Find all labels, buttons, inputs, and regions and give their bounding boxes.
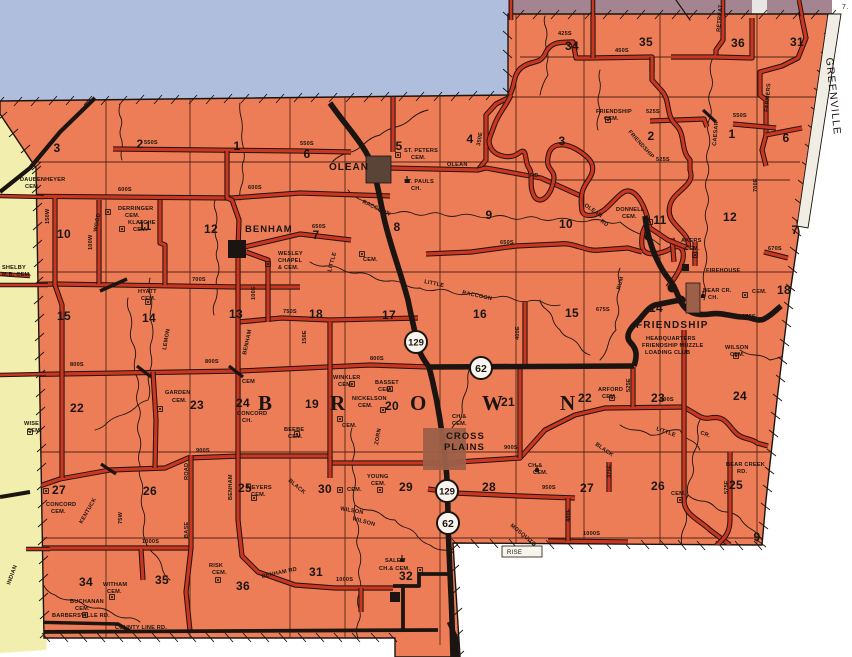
svg-text:DAUBENHEYER: DAUBENHEYER — [20, 177, 65, 183]
svg-text:CH.&: CH.& — [528, 463, 542, 469]
svg-text:CONCORD: CONCORD — [46, 502, 76, 508]
svg-text:NICKELSON: NICKELSON — [352, 396, 387, 402]
svg-text:675S: 675S — [742, 314, 756, 320]
svg-text:35: 35 — [639, 35, 653, 49]
svg-text:WISE: WISE — [24, 421, 39, 427]
svg-text:ARFORD: ARFORD — [598, 387, 623, 393]
svg-text:19: 19 — [305, 397, 319, 411]
svg-text:WINKLER: WINKLER — [333, 375, 361, 381]
svg-text:RD.: RD. — [737, 469, 747, 475]
svg-text:1000S: 1000S — [336, 577, 353, 583]
svg-text:RISK: RISK — [209, 563, 223, 569]
svg-text:BASSET: BASSET — [375, 380, 399, 386]
svg-text:DONNELL: DONNELL — [616, 207, 645, 213]
svg-text:CROSS: CROSS — [446, 431, 485, 442]
svg-text:13: 13 — [229, 307, 243, 321]
svg-text:RD.: RD. — [530, 173, 540, 179]
svg-text:3: 3 — [54, 141, 61, 155]
svg-text:CEM.: CEM. — [752, 289, 767, 295]
svg-text:12: 12 — [723, 210, 737, 224]
svg-text:900S: 900S — [196, 448, 210, 454]
svg-text:COUNTY LINE RD.: COUNTY LINE RD. — [115, 625, 167, 631]
svg-text:62: 62 — [475, 363, 487, 375]
svg-text:35: 35 — [155, 573, 169, 587]
svg-text:375E: 375E — [607, 464, 613, 478]
svg-text:CEM.: CEM. — [452, 421, 467, 427]
svg-text:OLEAN: OLEAN — [447, 162, 468, 168]
svg-text:18: 18 — [309, 307, 323, 321]
svg-text:BENHAM: BENHAM — [245, 224, 293, 235]
svg-text:BEAR CREEK: BEAR CREEK — [726, 462, 765, 468]
svg-text:CEM.: CEM. — [730, 352, 745, 358]
svg-text:7.: 7. — [842, 4, 848, 11]
svg-text:CEM.: CEM. — [251, 492, 266, 498]
svg-text:CEM.: CEM. — [27, 428, 42, 434]
svg-text:HEADQUARTERS: HEADQUARTERS — [646, 336, 696, 342]
svg-text:FRIENDSHIP MUZZLE: FRIENDSHIP MUZZLE — [642, 343, 703, 349]
svg-text:10: 10 — [57, 227, 71, 241]
svg-text:550S: 550S — [733, 113, 747, 119]
svg-text:700S: 700S — [192, 277, 206, 283]
svg-text:670S: 670S — [768, 246, 782, 252]
svg-text:650S: 650S — [500, 240, 514, 246]
svg-text:BUCHANAN: BUCHANAN — [70, 599, 104, 605]
svg-text:575E: 575E — [724, 480, 730, 494]
svg-text:62: 62 — [442, 518, 454, 530]
svg-text:KLATCHE: KLATCHE — [128, 220, 156, 226]
svg-text:425S: 425S — [558, 31, 572, 37]
svg-text:550S: 550S — [144, 140, 158, 146]
svg-text:1000S: 1000S — [142, 539, 159, 545]
svg-text:150E: 150E — [302, 330, 308, 344]
svg-text:CEM.: CEM. — [25, 184, 40, 190]
svg-text:7: 7 — [313, 228, 320, 242]
svg-text:CEM.: CEM. — [685, 246, 700, 252]
svg-text:FRIENDSHIP: FRIENDSHIP — [636, 320, 709, 331]
svg-text:ST. PETERS: ST. PETERS — [404, 148, 438, 154]
svg-text:SHELBY: SHELBY — [2, 265, 26, 271]
svg-text:10: 10 — [559, 217, 573, 231]
svg-text:36: 36 — [731, 36, 745, 50]
svg-text:27: 27 — [580, 481, 594, 495]
svg-text:11: 11 — [653, 213, 666, 227]
svg-text:525S: 525S — [656, 157, 670, 163]
svg-text:550S: 550S — [300, 141, 314, 147]
svg-text:CH.& CEM.: CH.& CEM. — [379, 566, 410, 572]
svg-text:MEYERS: MEYERS — [247, 485, 272, 491]
svg-text:ROAD: ROAD — [184, 463, 190, 480]
svg-text:CH.: CH. — [242, 418, 252, 424]
svg-text:36: 36 — [236, 579, 250, 593]
svg-text:CEM.: CEM. — [125, 213, 140, 219]
svg-text:BENHAM: BENHAM — [228, 474, 234, 500]
svg-text:CH.: CH. — [708, 295, 718, 301]
svg-text:14: 14 — [142, 311, 156, 325]
svg-text:22: 22 — [578, 391, 592, 405]
svg-text:30: 30 — [318, 482, 332, 496]
svg-text:34: 34 — [79, 575, 93, 589]
svg-text:FRIENDSHIP: FRIENDSHIP — [596, 109, 632, 115]
svg-text:20: 20 — [385, 399, 399, 413]
svg-text:O: O — [410, 391, 427, 415]
svg-text:2: 2 — [137, 137, 144, 151]
svg-text:31: 31 — [790, 35, 804, 49]
svg-text:1000S: 1000S — [583, 531, 600, 537]
svg-text:AKERS: AKERS — [681, 238, 702, 244]
svg-text:25: 25 — [729, 478, 743, 492]
svg-text:9: 9 — [754, 530, 761, 544]
svg-text:N: N — [560, 391, 575, 415]
svg-text:CEM.: CEM. — [622, 214, 637, 220]
svg-text:2: 2 — [648, 129, 655, 143]
svg-text:YOUNG: YOUNG — [367, 474, 389, 480]
svg-text:HYATT: HYATT — [138, 289, 157, 295]
svg-text:16: 16 — [473, 307, 487, 321]
svg-text:600S: 600S — [248, 185, 262, 191]
svg-text:75W: 75W — [118, 511, 124, 524]
svg-text:CEM.: CEM. — [107, 589, 122, 595]
svg-text:400E: 400E — [515, 326, 521, 340]
svg-text:900S: 900S — [660, 397, 674, 403]
svg-text:CEM.: CEM. — [133, 227, 148, 233]
svg-text:RISE: RISE — [507, 550, 522, 556]
svg-text:24: 24 — [733, 389, 747, 403]
svg-text:CEM: CEM — [242, 379, 255, 385]
svg-text:29: 29 — [399, 480, 413, 494]
svg-text:15: 15 — [565, 306, 579, 320]
svg-text:WESLEY: WESLEY — [278, 251, 303, 257]
svg-text:CEM.: CEM. — [358, 403, 373, 409]
svg-text:M.B. CEM.: M.B. CEM. — [2, 272, 31, 278]
svg-text:800S: 800S — [370, 356, 384, 362]
svg-text:CEM.: CEM. — [411, 155, 426, 161]
svg-text:15: 15 — [57, 309, 71, 323]
svg-text:800S: 800S — [70, 362, 84, 368]
svg-text:100W: 100W — [88, 234, 94, 250]
svg-text:28: 28 — [482, 480, 496, 494]
svg-text:BASE: BASE — [184, 522, 190, 538]
svg-text:CEM.: CEM. — [212, 570, 227, 576]
svg-text:CEM.: CEM. — [604, 116, 619, 122]
svg-text:CEM.: CEM. — [338, 382, 353, 388]
svg-text:CEM.: CEM. — [671, 491, 686, 497]
svg-text:950S: 950S — [542, 485, 556, 491]
svg-text:129: 129 — [439, 486, 455, 497]
svg-text:1: 1 — [729, 127, 736, 141]
svg-text:450S: 450S — [615, 48, 629, 54]
svg-text:CEM.: CEM. — [363, 257, 378, 263]
svg-text:& CEM.: & CEM. — [278, 265, 299, 271]
svg-text:4: 4 — [467, 132, 474, 146]
svg-text:LOADING CLUB: LOADING CLUB — [645, 350, 690, 356]
svg-text:6: 6 — [304, 147, 311, 161]
svg-text:CH.&: CH.& — [452, 414, 466, 420]
svg-text:CEM.: CEM. — [371, 481, 386, 487]
svg-text:CEM.: CEM. — [347, 487, 362, 493]
svg-text:26: 26 — [651, 479, 665, 493]
svg-text:6: 6 — [783, 131, 790, 145]
svg-text:CEM.: CEM. — [51, 509, 66, 515]
svg-text:9: 9 — [486, 208, 493, 222]
svg-text:480E: 480E — [566, 508, 572, 522]
svg-text:23: 23 — [190, 398, 204, 412]
svg-text:WILSON: WILSON — [725, 345, 749, 351]
svg-text:CEM.: CEM. — [288, 434, 303, 440]
svg-text:675S: 675S — [596, 307, 610, 313]
svg-text:WITHAM: WITHAM — [103, 582, 127, 588]
svg-text:8: 8 — [394, 220, 401, 234]
svg-text:34: 34 — [565, 39, 579, 53]
svg-text:650S: 650S — [312, 224, 326, 230]
svg-text:31: 31 — [309, 565, 323, 579]
svg-text:22: 22 — [70, 401, 84, 415]
svg-text:18: 18 — [777, 283, 791, 297]
svg-text:CHAPEL: CHAPEL — [278, 258, 303, 264]
svg-text:CEM.: CEM. — [141, 296, 156, 302]
svg-text:750S: 750S — [283, 309, 297, 315]
svg-text:525E: 525E — [626, 378, 632, 392]
svg-text:CEM.: CEM. — [75, 606, 90, 612]
svg-text:800S: 800S — [205, 359, 219, 365]
svg-text:700E: 700E — [753, 178, 759, 192]
svg-text:27: 27 — [52, 483, 66, 497]
svg-text:26: 26 — [143, 484, 157, 498]
svg-text:100E: 100E — [251, 286, 257, 300]
svg-text:12: 12 — [204, 222, 218, 236]
svg-text:24: 24 — [236, 396, 250, 410]
svg-text:CONCORD: CONCORD — [237, 411, 267, 417]
svg-text:600S: 600S — [118, 187, 132, 193]
svg-text:BARBERSVILLE RD.: BARBERSVILLE RD. — [52, 613, 110, 619]
svg-text:PLAINS: PLAINS — [444, 442, 485, 453]
svg-text:525S: 525S — [646, 109, 660, 115]
svg-text:3: 3 — [559, 134, 566, 148]
svg-text:1: 1 — [234, 139, 241, 153]
svg-text:FIREHOUSE: FIREHOUSE — [706, 268, 741, 274]
svg-text:129: 129 — [408, 337, 424, 348]
svg-text:150W: 150W — [45, 208, 51, 224]
svg-text:CH.: CH. — [411, 186, 421, 192]
svg-text:21: 21 — [501, 395, 515, 409]
svg-text:CEM.: CEM. — [378, 387, 393, 393]
svg-text:17: 17 — [382, 308, 396, 322]
svg-text:CEM.: CEM. — [172, 398, 187, 404]
svg-text:BEAR CR.: BEAR CR. — [703, 288, 732, 294]
svg-text:OLEAN: OLEAN — [329, 162, 369, 173]
svg-text:DERRINGER: DERRINGER — [118, 206, 153, 212]
svg-text:900S: 900S — [504, 445, 518, 451]
svg-text:CEM.: CEM. — [342, 423, 357, 429]
svg-text:R: R — [330, 391, 346, 415]
svg-text:5: 5 — [396, 139, 403, 153]
svg-text:GARDEN: GARDEN — [165, 390, 190, 396]
svg-text:14: 14 — [649, 301, 663, 315]
